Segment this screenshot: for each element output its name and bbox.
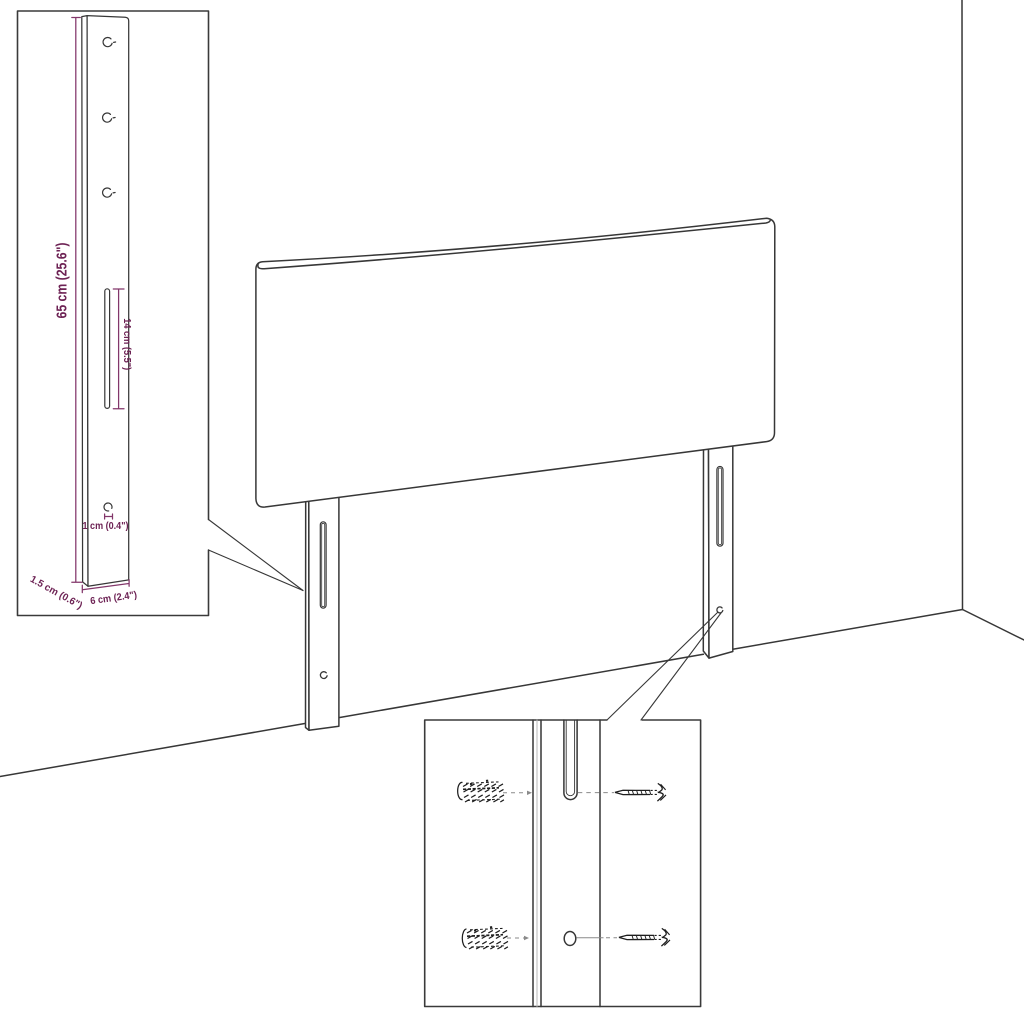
svg-text:6 cm (2.4"): 6 cm (2.4") bbox=[90, 590, 138, 607]
svg-text:65 cm (25.6"): 65 cm (25.6") bbox=[53, 242, 70, 318]
svg-text:14 cm (5.5"): 14 cm (5.5") bbox=[121, 318, 132, 370]
svg-text:1 cm (0.4"): 1 cm (0.4") bbox=[83, 521, 129, 532]
